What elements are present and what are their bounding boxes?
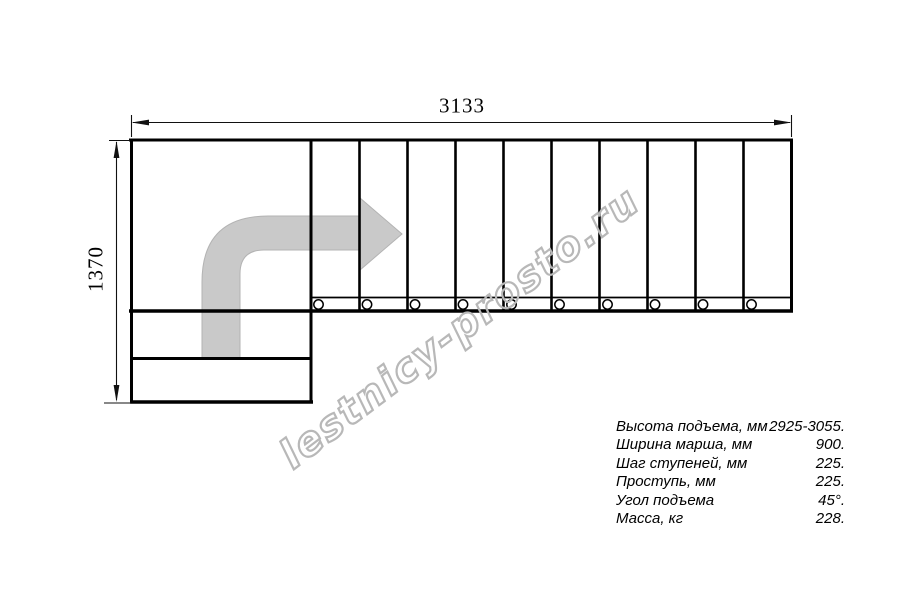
spec-label: Угол подъема	[616, 492, 714, 510]
spec-label: Шаг ступеней, мм	[616, 455, 747, 473]
spec-row-angle: Угол подъема 45°.	[616, 492, 845, 510]
spec-row-height: Высота подъема, мм 2925-3055.	[616, 418, 845, 436]
spec-value: 225.	[816, 455, 845, 473]
spec-value: 2925-3055.	[769, 418, 845, 436]
dimension-width-label: 3133	[439, 94, 485, 119]
spec-label: Высота подъема, мм	[616, 418, 768, 436]
spec-row-mass: Масса, кг 228.	[616, 510, 845, 528]
spec-label: Масса, кг	[616, 510, 683, 528]
spec-value: 45°.	[818, 492, 845, 510]
direction-arrow-icon	[202, 198, 402, 358]
spec-label: Проступь, мм	[616, 473, 716, 491]
fastener-circles	[314, 300, 756, 309]
spec-value: 225.	[816, 473, 845, 491]
spec-value: 228.	[816, 510, 845, 528]
spec-row-step: Шаг ступеней, мм 225.	[616, 455, 845, 473]
spec-value: 900.	[816, 436, 845, 454]
dimension-height-label: 1370	[84, 246, 109, 292]
spec-row-width: Ширина марша, мм 900.	[616, 436, 845, 454]
spec-table: Высота подъема, мм 2925-3055. Ширина мар…	[616, 418, 845, 528]
drawing-canvas: 3133 1370 lestnicy-prosto.ru Высота подъ…	[0, 0, 900, 600]
spec-row-tread: Проступь, мм 225.	[616, 473, 845, 491]
spec-label: Ширина марша, мм	[616, 436, 752, 454]
